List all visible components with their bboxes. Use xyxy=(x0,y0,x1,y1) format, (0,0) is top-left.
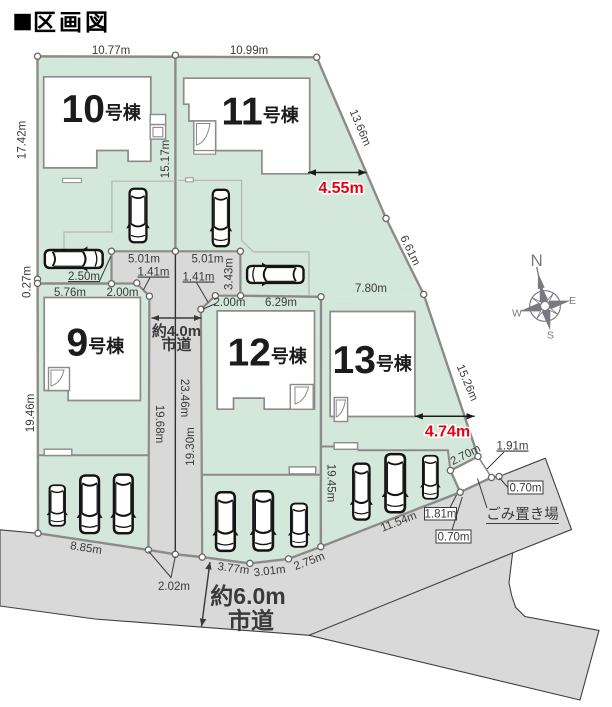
svg-text:5.01m: 5.01m xyxy=(192,254,224,266)
svg-text:3.43m: 3.43m xyxy=(224,258,236,290)
svg-text:10.77m: 10.77m xyxy=(92,45,130,57)
svg-text:19.30m: 19.30m xyxy=(185,427,197,465)
svg-text:19.68m: 19.68m xyxy=(153,405,165,443)
svg-text:E: E xyxy=(569,295,576,307)
svg-text:2.00m: 2.00m xyxy=(107,287,139,299)
svg-text:市道: 市道 xyxy=(228,608,274,634)
svg-text:0.70m: 0.70m xyxy=(510,483,542,495)
svg-text:0.70m: 0.70m xyxy=(438,532,470,544)
svg-text:10.99m: 10.99m xyxy=(230,45,268,57)
svg-text:1.91m: 1.91m xyxy=(497,441,529,453)
svg-text:0.27m: 0.27m xyxy=(22,266,34,298)
svg-text:2.00m: 2.00m xyxy=(214,297,246,309)
svg-text:19.45m: 19.45m xyxy=(325,464,337,502)
svg-text:7.80m: 7.80m xyxy=(355,283,387,295)
svg-text:区画図: 区画図 xyxy=(33,9,111,35)
svg-text:2.50m: 2.50m xyxy=(68,271,100,283)
svg-text:S: S xyxy=(547,330,554,342)
svg-text:W: W xyxy=(512,308,522,320)
svg-text:4.55m: 4.55m xyxy=(318,180,363,197)
svg-text:4.74m: 4.74m xyxy=(425,424,470,441)
svg-text:N: N xyxy=(530,251,542,270)
svg-text:1.41m: 1.41m xyxy=(183,272,215,284)
svg-text:市道: 市道 xyxy=(161,336,191,354)
svg-text:15.17m: 15.17m xyxy=(160,140,172,178)
svg-text:17.42m: 17.42m xyxy=(17,121,29,159)
svg-text:19.46m: 19.46m xyxy=(25,394,37,432)
svg-text:2.02m: 2.02m xyxy=(158,581,190,593)
svg-text:ごみ置き場: ごみ置き場 xyxy=(486,506,559,523)
svg-text:23.46m: 23.46m xyxy=(178,379,190,417)
svg-text:5.01m: 5.01m xyxy=(128,254,160,266)
svg-text:5.76m: 5.76m xyxy=(54,287,86,299)
svg-text:約6.0m: 約6.0m xyxy=(210,583,285,609)
svg-text:1.81m: 1.81m xyxy=(425,509,457,521)
svg-text:6.29m: 6.29m xyxy=(265,297,297,309)
svg-text:1.41m: 1.41m xyxy=(138,267,170,279)
